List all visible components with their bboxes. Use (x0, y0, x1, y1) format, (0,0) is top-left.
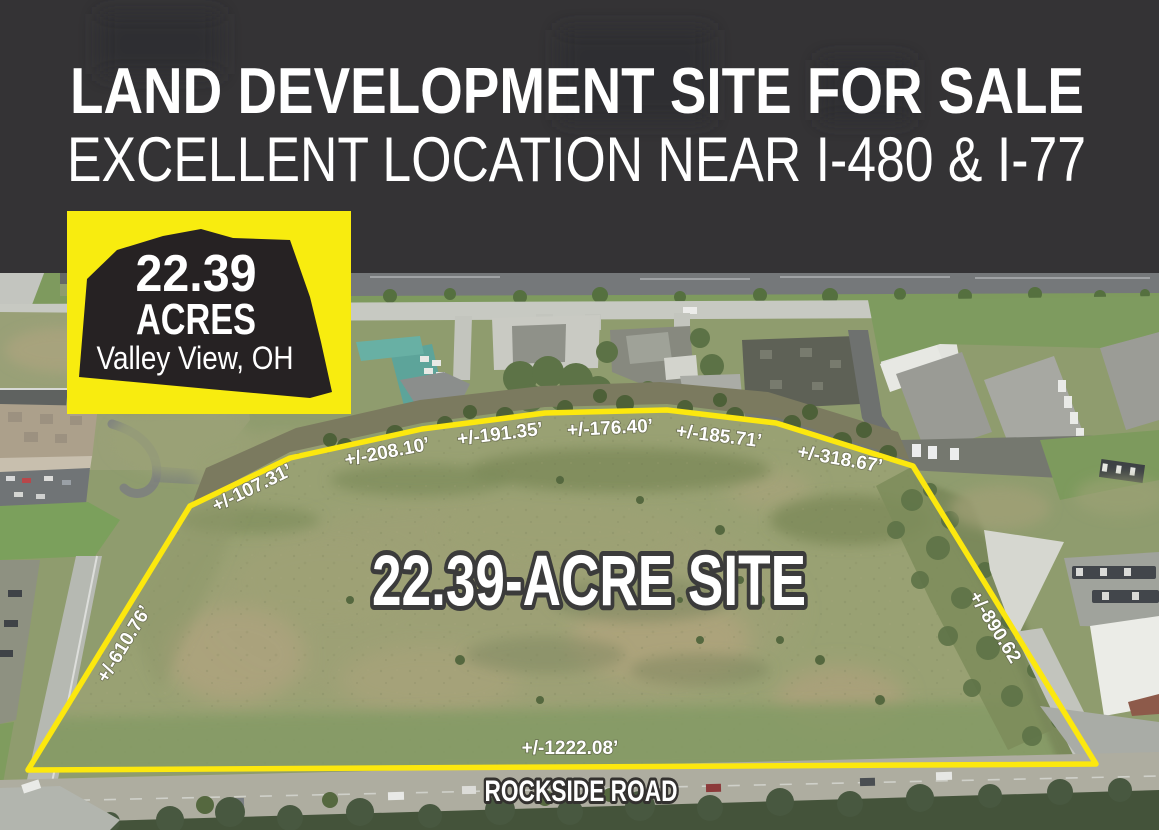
svg-text:Valley View, OH: Valley View, OH (97, 340, 294, 376)
svg-text:LAND DEVELOPMENT SITE FOR SALE: LAND DEVELOPMENT SITE FOR SALE (70, 55, 1084, 127)
svg-text:+/-1222.08’: +/-1222.08’ (522, 738, 619, 759)
svg-text:22.39: 22.39 (136, 244, 257, 302)
svg-text:+/-176.40’: +/-176.40’ (566, 416, 653, 441)
svg-text:22.39-ACRE SITE: 22.39-ACRE SITE (372, 542, 806, 621)
svg-text:ACRES: ACRES (136, 295, 256, 344)
svg-text:ROCKSIDE ROAD: ROCKSIDE ROAD (485, 775, 678, 808)
svg-text:EXCELLENT LOCATION NEAR I-480: EXCELLENT LOCATION NEAR I-480 & I-77 (67, 125, 1086, 195)
